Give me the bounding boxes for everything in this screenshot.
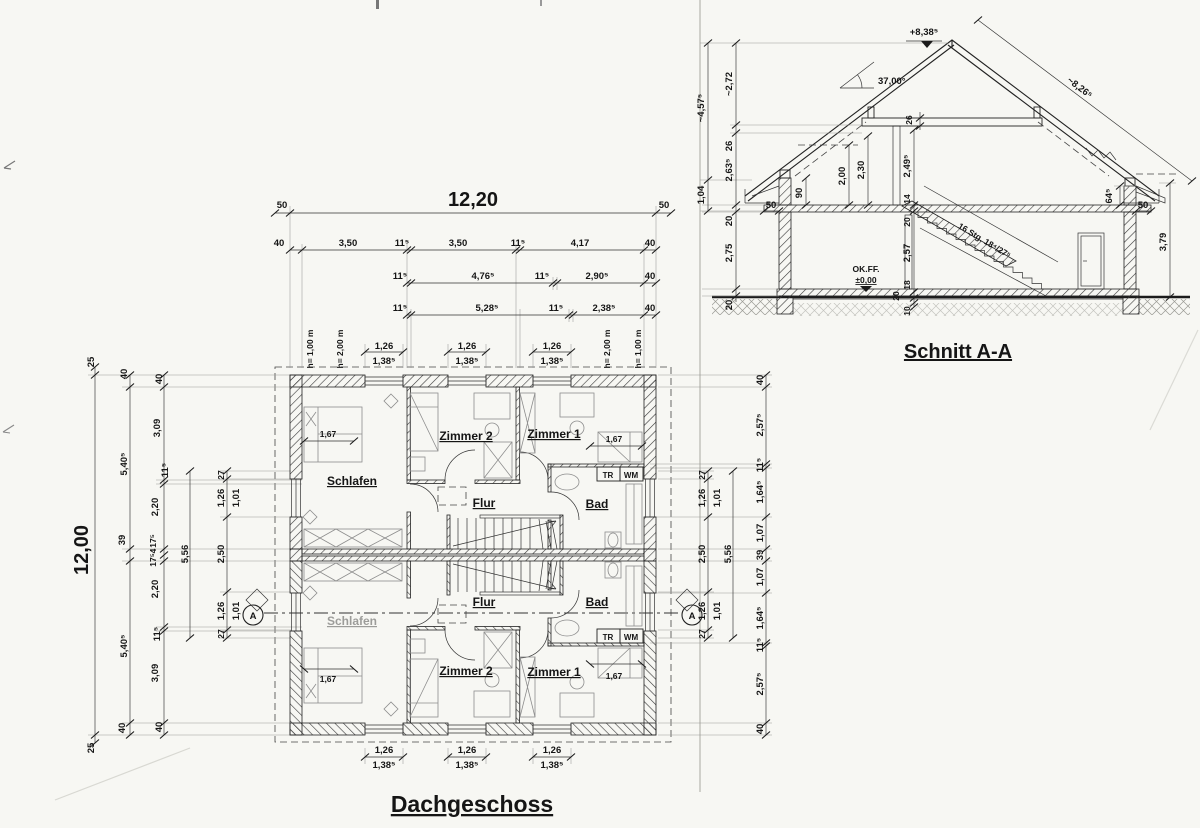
chimney-outline	[438, 487, 466, 505]
dim-label: 1,38⁵	[541, 356, 564, 367]
dim-label: 40	[274, 238, 285, 249]
dim-label: 40	[117, 723, 128, 734]
dim-label: 2,50	[697, 545, 708, 564]
dim-label: 2,20	[150, 498, 161, 517]
dim-label: 1,04	[696, 185, 707, 204]
dim-label: 1,26	[458, 745, 477, 756]
party-wall	[290, 549, 656, 561]
room-label-schlafen: Schlafen	[327, 474, 377, 488]
section-a-a: +8,38⁵ 37,00° ~8,26⁵ ~4,57⁵ 1,04 ~2,72 2…	[696, 17, 1196, 364]
room-label-bad: Bad	[586, 595, 609, 609]
dim-label: 40	[755, 375, 766, 386]
dim-label: 40	[755, 724, 766, 735]
dim-label: 40	[154, 722, 165, 733]
dim-label: 11⁵	[393, 271, 408, 282]
dim-label: 25	[86, 356, 97, 367]
dim-label: 2,90⁵	[586, 271, 609, 282]
section-structure	[745, 40, 1176, 296]
dim-label: 3,50	[339, 238, 358, 249]
dim-label: 1,01	[712, 601, 723, 620]
dim-label: 1,26	[216, 602, 227, 621]
dim-label: 2,50	[216, 545, 227, 564]
section-dim-labels: ~4,57⁵ 1,04 ~2,72 26 2,63⁵ 20 2,75 20 90…	[696, 72, 1169, 316]
floor-plan-dachgeschoss: A A 50 1	[71, 189, 772, 817]
dim-label: 5,28⁵	[476, 303, 499, 314]
dim-label: 1,26	[458, 341, 477, 352]
dim-label-overall-width: 12,20	[448, 189, 498, 211]
pen-mark-icon	[4, 161, 15, 169]
room-label-bad: Bad	[586, 497, 609, 511]
dim-label: 1,01	[231, 488, 242, 507]
room-label-schlafen: Schlafen	[327, 614, 377, 628]
angle-label: 37,00°	[878, 76, 906, 87]
dim-label: 27	[697, 629, 707, 639]
insulation-zigzag	[1086, 148, 1116, 160]
dim-label: 11⁵	[395, 238, 410, 249]
room-label-zimmer2: Zimmer 2	[439, 429, 493, 443]
dim-label: 20	[724, 216, 735, 227]
dim-label: 50	[277, 200, 288, 211]
level-label: +8,38⁵	[910, 27, 939, 38]
dim-label: 11⁵	[393, 303, 408, 314]
dim-label: 40	[645, 303, 656, 314]
dim-label: 64⁵	[1104, 188, 1115, 203]
dim-label: 11⁵	[152, 627, 163, 642]
dim-label: 2,75	[724, 243, 735, 262]
dim-label: 2,57	[902, 244, 913, 263]
section-title: Schnitt A-A	[904, 341, 1012, 363]
extension-lines	[88, 206, 772, 764]
dim-label: 25	[86, 742, 97, 753]
dim-label: 1,26	[697, 489, 708, 508]
plan-title: Dachgeschoss	[391, 791, 553, 817]
room-label-zimmer2: Zimmer 2	[439, 664, 493, 678]
dim-label-overall-height: 12,00	[71, 525, 93, 575]
ridge-level-marker: +8,38⁵	[906, 27, 942, 48]
dim-label: 2,38⁵	[593, 303, 616, 314]
dim-label: 1,67	[606, 434, 623, 444]
dim-label: 10	[902, 306, 912, 316]
dim-label: 18	[902, 280, 912, 290]
dim-label: 90	[794, 188, 805, 199]
appliance-label-tr: TR	[603, 471, 614, 480]
staircase	[447, 515, 563, 549]
dim-label: 1,01	[712, 488, 723, 507]
section-marker-letter: A	[689, 611, 696, 622]
section-marker-letter: A	[250, 611, 257, 622]
dim-label: 50	[766, 200, 777, 211]
dim-label: 11⁵	[535, 271, 550, 282]
dim-label: 50	[1138, 200, 1149, 211]
dim-label: 11⁵	[549, 303, 564, 314]
dim-label: 3,09	[150, 664, 161, 683]
dim-label: 2,20	[150, 580, 161, 599]
dim-label: 4	[148, 548, 158, 553]
dim-label: 11⁵	[755, 458, 766, 473]
dim-label: 50	[659, 200, 670, 211]
dim-label: 40	[645, 271, 656, 282]
dim-label: 5,56	[180, 545, 191, 564]
dim-label: 1,38⁵	[456, 356, 479, 367]
dim-label: 4,76⁵	[472, 271, 495, 282]
dim-label: 39	[117, 535, 128, 546]
floor-level-note: OK.FF. ±0,00	[853, 264, 880, 292]
room-label-zimmer1: Zimmer 1	[527, 665, 581, 679]
dim-label: 1,64⁵	[755, 607, 766, 630]
furniture	[303, 393, 642, 548]
dim-label: 11⁵	[755, 638, 766, 653]
dim-label: 40	[154, 374, 165, 385]
dim-label: 2,49⁵	[902, 155, 913, 178]
dim-label: 20	[902, 217, 912, 227]
dim-label: 1,26	[375, 341, 394, 352]
door-elevation	[1078, 233, 1104, 289]
appliance-label-wm: WM	[624, 633, 639, 642]
height-note: h= 1,00 m	[633, 329, 643, 368]
dim-label: 5,40⁵	[119, 453, 130, 476]
dim-label: 1,01	[231, 601, 242, 620]
dim-label: 39	[755, 550, 766, 561]
dim-label: 1,07	[755, 568, 766, 587]
dim-label: 1,26	[543, 745, 562, 756]
dim-label: 17⁵	[148, 534, 158, 547]
dim-label-slope: ~8,26⁵	[1065, 75, 1094, 101]
dim-label: 5,56	[723, 545, 734, 564]
dim-label: 40	[119, 369, 130, 380]
pen-mark-icon	[3, 425, 14, 433]
section-extension-lines	[700, 43, 1176, 296]
dim-label: 20	[724, 300, 735, 311]
roof-angle: 37,00°	[840, 62, 906, 88]
section-marker-left: A	[243, 589, 268, 625]
dim-label: 27	[216, 629, 226, 639]
level-label: ±0,00	[855, 275, 876, 285]
scanned-blueprint-page: A A 50 1	[0, 0, 1200, 828]
dim-label: ~2,72	[724, 72, 735, 96]
dimension-ticks	[91, 210, 770, 761]
dim-label: 3,79	[1158, 233, 1169, 252]
dim-label: 3,50	[449, 238, 468, 249]
dim-label: 1,26	[216, 489, 227, 508]
height-note: h= 2,00 m	[602, 329, 612, 368]
height-note: h= 2,00 m	[335, 329, 345, 368]
dim-label: 1,38⁵	[373, 356, 396, 367]
dim-label: ~4,57⁵	[696, 94, 707, 123]
height-note: h= 1,00 m	[305, 329, 315, 368]
dim-label: 11⁵	[160, 463, 171, 478]
dim-label: 1,67	[320, 674, 337, 684]
dim-label: 2,63⁵	[724, 159, 735, 182]
dim-label: 1,67	[320, 429, 337, 439]
dim-label: 27	[697, 470, 707, 480]
dim-label: 17⁵	[148, 553, 158, 566]
dim-label: 1,26	[697, 602, 708, 621]
dim-label: 1,26	[375, 745, 394, 756]
dim-label: 2,30	[856, 161, 867, 180]
dim-label: 4,17	[571, 238, 590, 249]
room-label-zimmer1: Zimmer 1	[527, 427, 581, 441]
dim-label: 1,64⁵	[755, 481, 766, 504]
dim-label: 1,26	[543, 341, 562, 352]
level-triangle-icon	[921, 41, 933, 48]
dim-label: 20	[891, 291, 901, 301]
dim-label: 1,07	[755, 524, 766, 543]
dim-label: 14	[902, 194, 912, 204]
dim-label: 26	[904, 115, 914, 125]
dim-label: 5,40⁵	[119, 635, 130, 658]
dim-label: 40	[645, 238, 656, 249]
dim-label: 1,67	[606, 671, 623, 681]
dim-label: 2,00	[837, 167, 848, 186]
dim-label: 1,38⁵	[541, 760, 564, 771]
mirrored-dwelling-unit	[290, 561, 656, 735]
room-label-flur: Flur	[473, 595, 496, 609]
room-label-flur: Flur	[473, 496, 496, 510]
appliance-label-wm: WM	[624, 471, 639, 480]
dim-label: 1,38⁵	[456, 760, 479, 771]
blueprint-drawing: A A 50 1	[0, 0, 1200, 828]
dim-label: 26	[724, 141, 735, 152]
dim-label: 2,57⁵	[755, 414, 766, 437]
dim-label: 2,57⁵	[755, 673, 766, 696]
roof-overhang-outline	[275, 367, 671, 742]
dim-label: 11⁵	[511, 238, 526, 249]
dim-label: 3,09	[152, 419, 163, 438]
dim-label: 27	[216, 470, 226, 480]
level-label: OK.FF.	[853, 264, 880, 274]
dim-label: 1,38⁵	[373, 760, 396, 771]
dwelling-unit-geometry	[290, 375, 656, 549]
appliance-label-tr: TR	[603, 633, 614, 642]
scan-artifacts	[3, 0, 1198, 800]
ground-and-foundation	[712, 289, 1190, 316]
section-dim-ticks	[704, 17, 1196, 311]
